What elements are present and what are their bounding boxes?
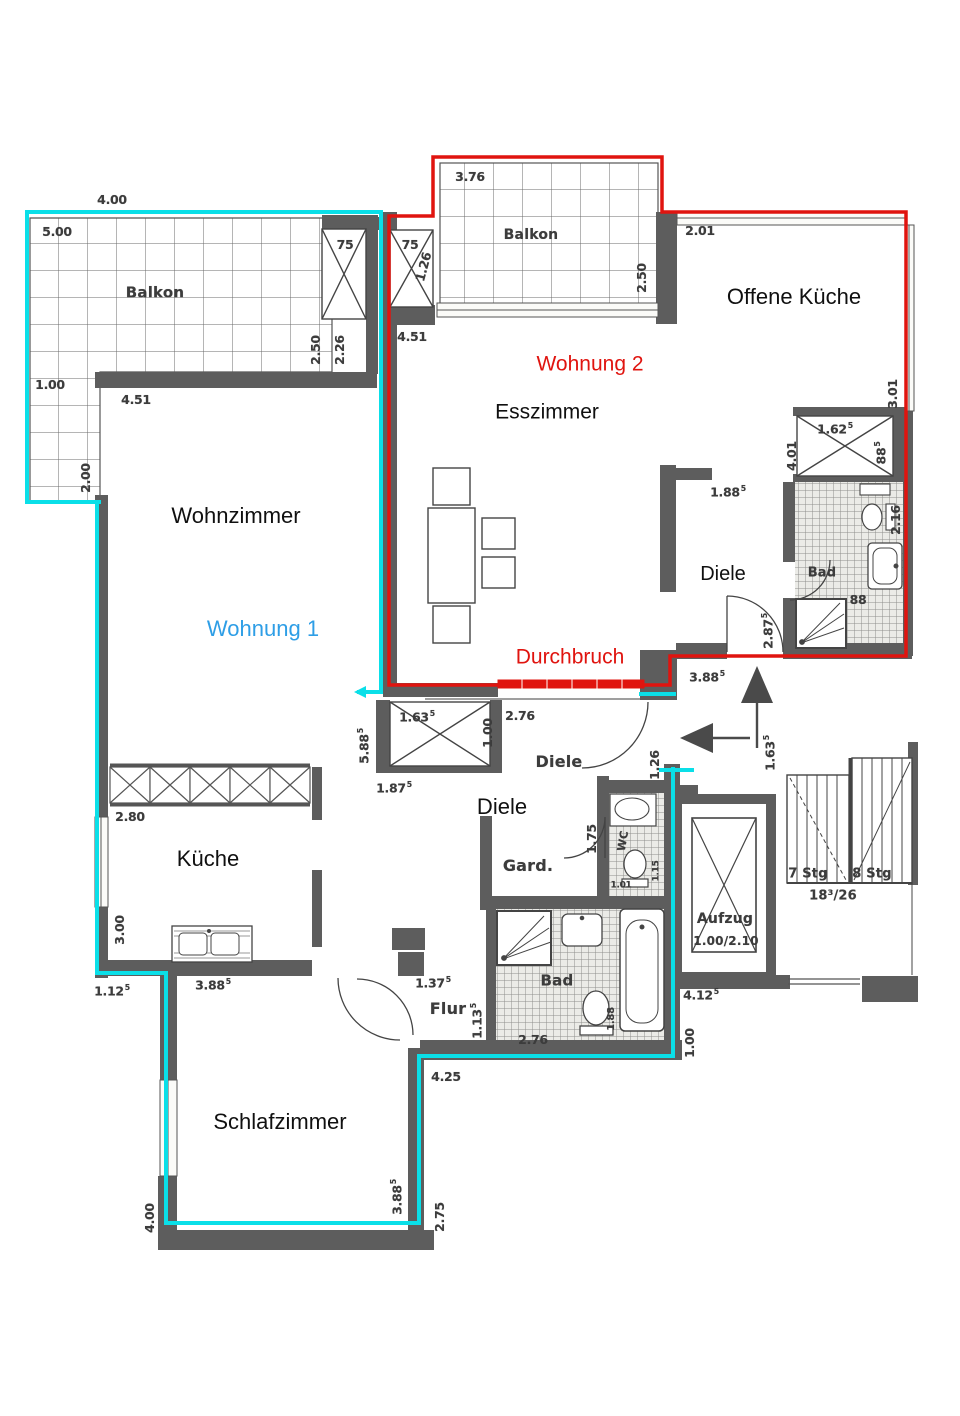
label-4-00-64: 4.00	[144, 1203, 157, 1233]
label-3-00-53: 3.00	[114, 915, 127, 945]
label-text: WC	[615, 830, 631, 853]
label-1-00-28: 1.00	[35, 379, 65, 392]
label-1-13-62: 1.135	[470, 1003, 484, 1039]
label-text: Diele	[477, 794, 527, 819]
label-8-stg-21: 8 Stg	[852, 868, 891, 881]
label-text: 3.76	[455, 169, 485, 184]
label-75-25: 75	[337, 239, 354, 252]
label-superscript: 5	[741, 484, 746, 493]
label-text: 1.26	[647, 750, 662, 780]
label-text: Balkon	[126, 284, 184, 302]
label-1-00-69: 1.00	[684, 1028, 697, 1058]
label-text: 4.00	[142, 1203, 157, 1233]
label-diele-6: Diele	[700, 564, 746, 584]
label-text: Balkon	[504, 227, 559, 243]
label-2-76-60: 2.76	[518, 1034, 548, 1047]
label-durchbruch-4: Durchbruch	[516, 647, 625, 668]
label-text: 4.01	[784, 441, 799, 471]
label-text: 2.00	[78, 463, 93, 493]
label-4-51-29: 4.51	[121, 394, 151, 407]
label-text: 2.76	[505, 708, 535, 723]
label-superscript: 5	[714, 987, 719, 996]
label-text: 3.88	[689, 669, 719, 684]
label-superscript: 5	[762, 735, 771, 740]
label-text: 4.25	[431, 1069, 461, 1084]
label-balkon-11: Balkon	[504, 228, 559, 242]
label-k-che-8: Küche	[177, 848, 239, 870]
label-18-26-22: 18³/26	[809, 890, 857, 903]
label-text: 1.63	[762, 741, 777, 771]
label-2-16-45: 2.16	[890, 505, 903, 535]
label-5-00-24: 5.00	[42, 226, 72, 239]
label-text: 3.88	[389, 1185, 404, 1215]
label-superscript: 5	[469, 1003, 478, 1008]
label-88-44: 88	[850, 594, 867, 607]
label-text: 2.75	[432, 1202, 447, 1232]
label-text: 1.62	[817, 421, 847, 436]
label-text: Wohnzimmer	[171, 503, 300, 528]
label-1-87-50: 1.875	[376, 781, 412, 795]
label-1-00-2-10-19: 1.00/2.10	[693, 935, 758, 947]
label-balkon-10: Balkon	[126, 286, 184, 301]
label-text: 1.12	[94, 983, 124, 998]
label-text: 1.26	[412, 251, 434, 284]
label-text: 3.00	[112, 915, 127, 945]
label-diele-7: Diele	[477, 796, 527, 818]
label-text: 1.63	[399, 709, 429, 724]
label-text: 4.12	[683, 987, 713, 1002]
label-1-26-51: 1.26	[649, 750, 662, 780]
label-text: Küche	[177, 846, 239, 871]
labels-layer: WohnzimmerWohnung 1EsszimmerWohnung 2Dur…	[0, 0, 960, 1416]
label-text: 88	[850, 592, 867, 607]
label-2-87-42: 2.875	[761, 613, 775, 649]
label-3-88-65: 3.885	[390, 1179, 404, 1215]
label-text: 8 Stg	[852, 867, 891, 882]
label-wohnzimmer-0: Wohnzimmer	[171, 505, 300, 527]
label-1-62-38: 1.625	[817, 422, 853, 436]
label-1-63-47: 1.635	[399, 710, 435, 724]
label-superscript: 5	[848, 421, 853, 430]
label-schlafzimmer-9: Schlafzimmer	[213, 1111, 346, 1133]
label-text: 1.75	[584, 824, 599, 854]
label-text: 1.88	[710, 484, 740, 499]
label-text: 4.00	[97, 192, 127, 207]
label-aufzug-18: Aufzug	[697, 912, 753, 926]
label-text: 1.37	[415, 975, 445, 990]
label-1-75-56: 1.75	[586, 824, 599, 854]
label-2-75-66: 2.75	[434, 1202, 447, 1232]
label-1-37-61: 1.375	[415, 976, 451, 990]
label-3-76-33: 3.76	[455, 171, 485, 184]
label-superscript: 5	[720, 669, 725, 678]
label-text: Bad	[541, 972, 574, 990]
label-text: 1.00	[35, 377, 65, 392]
label-text: 1.13	[469, 1009, 484, 1039]
label-2-00-30: 2.00	[80, 463, 93, 493]
label-text: Wohnung 2	[536, 353, 643, 376]
label-text: Offene Küche	[727, 284, 861, 309]
label-text: 3.01	[885, 379, 900, 409]
label-text: Flur	[430, 999, 467, 1018]
label-text: 1.87	[376, 780, 406, 795]
label-text: 1.88	[606, 1007, 617, 1030]
label-text: 1.00	[682, 1028, 697, 1058]
label-text: 75	[337, 237, 354, 252]
label-text: Durchbruch	[516, 646, 625, 669]
label-text: 2.50	[634, 263, 649, 293]
label-superscript: 5	[430, 709, 435, 718]
label-text: Schlafzimmer	[213, 1109, 346, 1134]
label-text: 18³/26	[809, 889, 857, 904]
label-1-26-32: 1.26	[414, 251, 434, 283]
label-1-12-54: 1.125	[94, 984, 130, 998]
label-text: 2.50	[308, 335, 323, 365]
label-text: Bad	[808, 566, 837, 581]
label-superscript: 5	[407, 780, 412, 789]
label-text: Wohnung 1	[207, 616, 319, 641]
label-text: 5.00	[42, 224, 72, 239]
floorplan-canvas: WohnzimmerWohnung 1EsszimmerWohnung 2Dur…	[0, 0, 960, 1416]
label-text: 3.88	[195, 977, 225, 992]
label-wc-17: WC	[616, 830, 630, 852]
label-superscript: 5	[760, 613, 769, 618]
label-text: 2.76	[518, 1032, 548, 1047]
label-text: Esszimmer	[495, 401, 599, 424]
label-2-26-27: 2.26	[334, 335, 347, 365]
label-text: Diele	[700, 563, 746, 585]
label-4-00-23: 4.00	[97, 194, 127, 207]
label-text: 1.15	[652, 860, 662, 881]
label-diele-12: Diele	[536, 754, 583, 770]
label-88-39: 885	[874, 442, 888, 465]
label-gard-13: Gard.	[503, 858, 553, 874]
label-4-01-40: 4.01	[786, 441, 799, 471]
label-4-25-63: 4.25	[431, 1071, 461, 1084]
label-2-80-52: 2.80	[115, 811, 145, 824]
label-superscript: 5	[873, 442, 882, 447]
label-text: 1.01	[610, 881, 631, 891]
label-4-51-35: 4.51	[397, 331, 427, 344]
label-3-01-37: 3.01	[887, 379, 900, 409]
label-wohnung-2-3: Wohnung 2	[536, 354, 643, 375]
label-superscript: 5	[356, 728, 365, 733]
label-text: 1.00/2.10	[693, 934, 758, 948]
label-bad-16: Bad	[808, 567, 837, 580]
label-2-01-36: 2.01	[685, 225, 715, 238]
label-75-31: 75	[402, 239, 419, 252]
label-5-88-49: 5.885	[357, 728, 371, 764]
label-text: 88	[873, 448, 888, 465]
label-wohnung-1-1: Wohnung 1	[207, 618, 319, 640]
floor-plan-page: { "plan": { "kind": "scanned apartment f…	[0, 0, 960, 1416]
label-1-88-59: 1.88	[607, 1007, 617, 1030]
label-text: Diele	[536, 752, 583, 771]
label-1-15-58: 1.15	[653, 860, 662, 881]
label-bad-15: Bad	[541, 974, 574, 989]
label-3-88-55: 3.885	[195, 978, 231, 992]
label-text: 7 Stg	[788, 867, 827, 882]
label-2-50-26: 2.50	[310, 335, 323, 365]
label-4-12-68: 4.125	[683, 988, 719, 1002]
label-superscript: 5	[226, 977, 231, 986]
label-esszimmer-2: Esszimmer	[495, 402, 599, 423]
label-superscript: 5	[389, 1179, 398, 1184]
label-1-00-48: 1.00	[482, 718, 495, 748]
label-superscript: 5	[125, 983, 130, 992]
label-1-88-41: 1.885	[710, 485, 746, 499]
label-3-88-43: 3.885	[689, 670, 725, 684]
label-text: Gard.	[503, 856, 553, 875]
label-superscript: 5	[446, 975, 451, 984]
label-text: 2.16	[888, 505, 903, 535]
label-text: 4.51	[121, 392, 151, 407]
label-text: 4.51	[397, 329, 427, 344]
label-text: Aufzug	[697, 911, 753, 927]
label-text: 2.01	[685, 223, 715, 238]
label-offene-k-che-5: Offene Küche	[727, 286, 861, 308]
label-text: 2.80	[115, 809, 145, 824]
label-flur-14: Flur	[430, 1001, 467, 1017]
label-7-stg-20: 7 Stg	[788, 868, 827, 881]
label-text: 2.87	[760, 619, 775, 649]
label-1-01-57: 1.01	[610, 882, 631, 891]
label-text: 75	[402, 237, 419, 252]
label-text: 2.26	[332, 335, 347, 365]
label-text: 5.88	[356, 734, 371, 764]
label-2-50-34: 2.50	[636, 263, 649, 293]
label-1-63-67: 1.635	[763, 735, 777, 771]
label-2-76-46: 2.76	[505, 710, 535, 723]
label-text: 1.00	[480, 718, 495, 748]
